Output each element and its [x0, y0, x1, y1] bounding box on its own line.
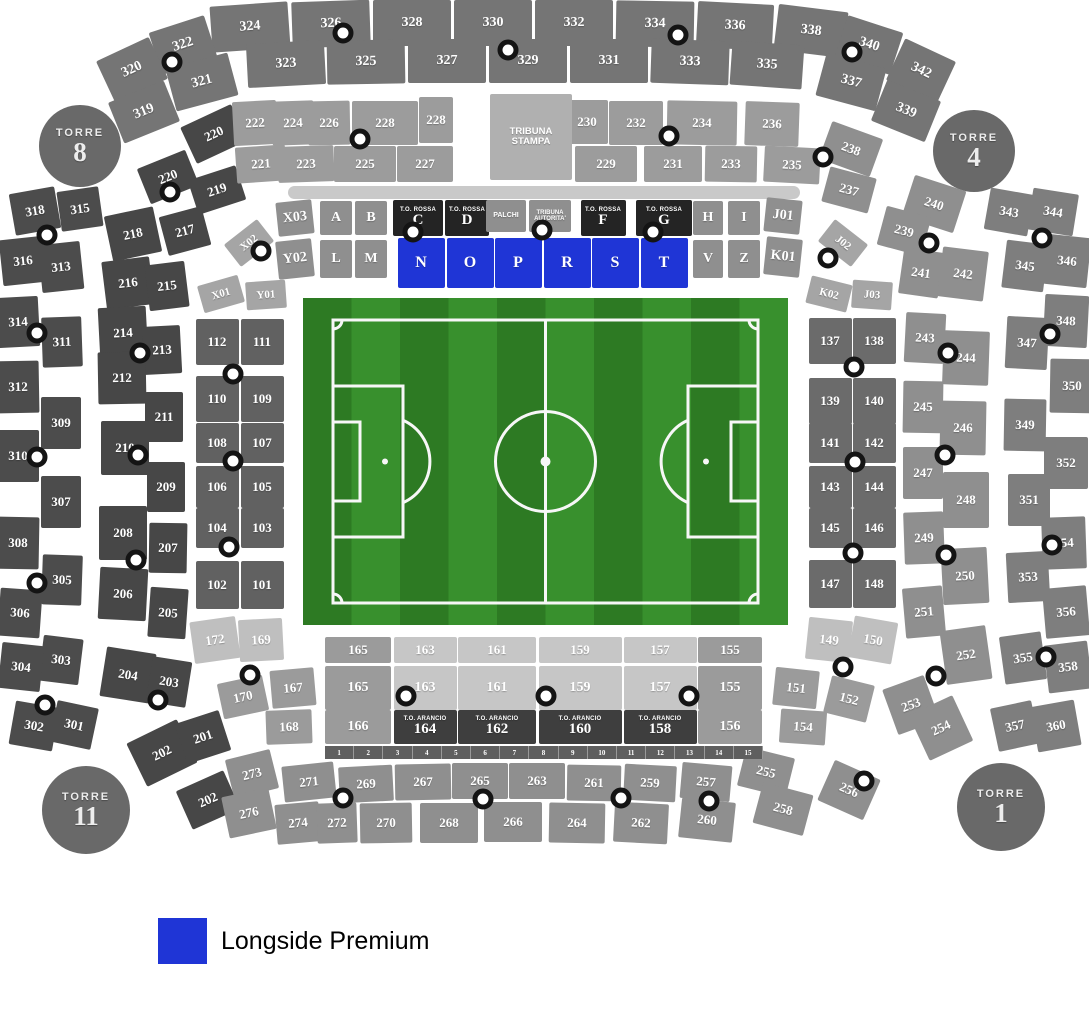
section-to-arancio-158: T.O. ARANCIO158	[624, 710, 697, 744]
gate-marker-icon	[818, 248, 839, 269]
section-163: 163	[394, 637, 457, 663]
section-304: 304	[0, 642, 44, 692]
section-106: 106	[196, 466, 239, 508]
section-to-rossa-f: T.O. ROSSAF	[581, 200, 626, 236]
section-b: B	[355, 201, 387, 235]
section-n[interactable]: N	[398, 238, 445, 288]
penalty-spot-left	[382, 459, 388, 465]
gate-marker-icon	[350, 129, 371, 150]
section-308: 308	[0, 517, 39, 570]
section-139: 139	[809, 378, 852, 424]
seat-row-number: 8	[529, 746, 558, 759]
section-207: 207	[149, 523, 188, 574]
gate-marker-icon	[498, 40, 519, 61]
gate-marker-icon	[27, 323, 48, 344]
section-o[interactable]: O	[447, 238, 494, 288]
section-150: 150	[848, 615, 899, 664]
section-to-arancio-162: T.O. ARANCIO162	[458, 710, 536, 744]
section-333: 333	[650, 39, 729, 86]
section-225: 225	[334, 146, 396, 182]
section-232: 232	[609, 101, 663, 145]
section-231: 231	[644, 146, 702, 182]
section-102: 102	[196, 561, 239, 609]
gate-marker-icon	[37, 225, 58, 246]
section-l: L	[320, 240, 352, 278]
gate-marker-icon	[611, 788, 632, 809]
section-161: 161	[458, 637, 536, 663]
section-a: A	[320, 201, 352, 235]
penalty-spot-right	[703, 459, 709, 465]
seat-row-number: 6	[471, 746, 500, 759]
section-i: I	[728, 201, 760, 235]
section-313: 313	[38, 241, 85, 293]
section-227: 227	[397, 146, 453, 182]
section-248: 248	[943, 472, 989, 528]
pitch	[303, 298, 788, 625]
gate-marker-icon	[668, 25, 689, 46]
stadium-seat-map: 123456789101112131415 Longside Premium 3…	[0, 0, 1089, 1032]
seat-row-number: 5	[442, 746, 471, 759]
section-236: 236	[744, 101, 800, 147]
section-z: Z	[728, 240, 760, 278]
seat-row-number: 9	[559, 746, 588, 759]
seat-row-number: 4	[413, 746, 442, 759]
gate-marker-icon	[27, 447, 48, 468]
section-270: 270	[360, 803, 413, 844]
section-105: 105	[241, 466, 284, 508]
section-266: 266	[484, 802, 542, 842]
section-m: M	[355, 240, 387, 278]
gate-marker-icon	[126, 550, 147, 571]
section-168: 168	[265, 709, 312, 745]
section-209: 209	[147, 462, 185, 512]
walkway-band	[288, 186, 800, 199]
section-352: 352	[1044, 437, 1088, 489]
section-229: 229	[575, 146, 637, 182]
gate-marker-icon	[935, 445, 956, 466]
section-335: 335	[730, 41, 805, 90]
gate-marker-icon	[854, 771, 875, 792]
tower-1: TORRE1	[957, 763, 1045, 851]
legend-label: Longside Premium	[221, 927, 429, 956]
gate-marker-icon	[223, 451, 244, 472]
section-to-arancio-164: T.O. ARANCIO164	[394, 710, 457, 744]
palchi-box: PALCHI	[486, 200, 526, 232]
section-263: 263	[509, 763, 565, 799]
section-155: 155	[698, 637, 762, 663]
section-111: 111	[241, 319, 284, 365]
gate-marker-icon	[130, 343, 151, 364]
seat-row-number: 15	[734, 746, 763, 759]
gate-marker-icon	[842, 42, 863, 63]
gate-marker-icon	[160, 182, 181, 203]
gate-marker-icon	[643, 222, 664, 243]
section-233: 233	[705, 146, 758, 183]
section-147: 147	[809, 560, 852, 608]
seat-row-number: 11	[617, 746, 646, 759]
section-252: 252	[939, 625, 992, 685]
gate-marker-icon	[679, 686, 700, 707]
gate-marker-icon	[148, 690, 169, 711]
section-307: 307	[41, 476, 81, 528]
center-spot	[541, 457, 551, 467]
section-j03: J03	[851, 280, 893, 311]
gate-marker-icon	[843, 543, 864, 564]
section-325: 325	[327, 39, 406, 84]
gate-marker-icon	[659, 126, 680, 147]
gate-marker-icon	[333, 788, 354, 809]
section-331: 331	[570, 39, 648, 83]
section-167: 167	[269, 667, 316, 709]
gate-marker-icon	[240, 665, 261, 686]
section-172: 172	[189, 616, 240, 664]
section-145: 145	[809, 508, 852, 548]
section-211: 211	[145, 392, 183, 442]
section-312: 312	[0, 361, 39, 414]
section-323: 323	[246, 40, 326, 88]
section-109: 109	[241, 376, 284, 422]
section-305: 305	[41, 554, 83, 605]
section-r[interactable]: R	[544, 238, 591, 288]
section-165: 165	[325, 637, 391, 663]
section-152: 152	[823, 675, 875, 723]
section-309: 309	[41, 397, 81, 449]
section-226: 226	[308, 101, 351, 146]
section-165: 165	[325, 666, 391, 710]
gate-marker-icon	[919, 233, 940, 254]
gate-marker-icon	[926, 666, 947, 687]
section-v: V	[693, 240, 723, 278]
section-143: 143	[809, 466, 852, 508]
gate-marker-icon	[699, 791, 720, 812]
section-j01: J01	[763, 197, 802, 235]
section-242: 242	[937, 246, 989, 301]
section-156: 156	[698, 710, 762, 744]
section-343: 343	[984, 187, 1035, 236]
section-144: 144	[853, 466, 896, 508]
legend: Longside Premium	[158, 918, 429, 964]
tower-8: TORRE8	[39, 105, 121, 187]
seat-row-number: 12	[646, 746, 675, 759]
gate-marker-icon	[223, 364, 244, 385]
gate-marker-icon	[1040, 324, 1061, 345]
section-to-arancio-160: T.O. ARANCIO160	[539, 710, 622, 744]
gate-marker-icon	[219, 537, 240, 558]
section-140: 140	[853, 378, 896, 424]
section-107: 107	[241, 423, 284, 463]
gate-marker-icon	[938, 343, 959, 364]
gate-marker-icon	[35, 695, 56, 716]
section-230: 230	[566, 100, 608, 144]
gate-marker-icon	[128, 445, 149, 466]
section-h: H	[693, 201, 723, 235]
section-154: 154	[779, 708, 827, 745]
section-k01: K01	[763, 236, 803, 278]
section-161: 161	[458, 666, 536, 710]
gate-marker-icon	[1032, 228, 1053, 249]
section-311: 311	[41, 316, 83, 367]
legend-swatch	[158, 918, 207, 964]
section-155: 155	[698, 666, 762, 710]
section-t[interactable]: T	[641, 238, 688, 288]
section-to-rossa-d: T.O. ROSSAD	[445, 200, 489, 236]
section-356: 356	[1042, 585, 1089, 639]
section-327: 327	[408, 39, 486, 83]
seat-row-number: 3	[383, 746, 412, 759]
section-k02: K02	[805, 275, 853, 312]
gate-marker-icon	[403, 222, 424, 243]
section-101: 101	[241, 561, 284, 609]
section-264: 264	[549, 803, 606, 844]
section-245: 245	[903, 381, 944, 434]
section-228: 228	[419, 97, 453, 143]
section-360: 360	[1030, 700, 1081, 753]
section-157: 157	[624, 637, 697, 663]
section-223: 223	[277, 145, 334, 183]
section-103: 103	[241, 508, 284, 548]
section-151: 151	[772, 667, 820, 709]
section-303: 303	[38, 635, 83, 686]
seat-row-number: 2	[354, 746, 383, 759]
section-258: 258	[752, 782, 813, 836]
section-272: 272	[316, 802, 357, 843]
section-274: 274	[274, 801, 321, 845]
section-137: 137	[809, 318, 852, 364]
section-235: 235	[763, 146, 821, 185]
section-112: 112	[196, 319, 239, 365]
gate-marker-icon	[473, 789, 494, 810]
gate-marker-icon	[27, 573, 48, 594]
seat-row-number: 10	[588, 746, 617, 759]
section-205: 205	[147, 587, 188, 640]
section-x01: X01	[197, 275, 245, 313]
section-159: 159	[539, 637, 622, 663]
section-215: 215	[144, 261, 189, 312]
section-206: 206	[98, 567, 149, 621]
section-y02: Y02	[275, 238, 315, 280]
seat-row-number: 14	[705, 746, 734, 759]
section-p[interactable]: P	[495, 238, 542, 288]
gate-marker-icon	[251, 241, 272, 262]
section-166: 166	[325, 710, 391, 744]
gate-marker-icon	[333, 23, 354, 44]
tower-11: TORRE11	[42, 766, 130, 854]
section-169: 169	[238, 618, 284, 662]
tribuna-stampa: TRIBUNASTAMPA	[490, 94, 572, 180]
gate-marker-icon	[162, 52, 183, 73]
seat-row-strip: 123456789101112131415	[325, 746, 763, 759]
section-217: 217	[159, 206, 212, 256]
seat-row-number: 13	[675, 746, 704, 759]
tower-4: TORRE4	[933, 110, 1015, 192]
section-306: 306	[0, 588, 43, 639]
seat-row-number: 7	[500, 746, 529, 759]
section-350: 350	[1050, 359, 1089, 414]
gate-marker-icon	[833, 657, 854, 678]
section-276: 276	[221, 787, 277, 838]
gate-marker-icon	[844, 357, 865, 378]
section-s[interactable]: S	[592, 238, 639, 288]
section-218: 218	[104, 206, 162, 261]
section-349: 349	[1004, 399, 1047, 452]
section-146: 146	[853, 508, 896, 548]
gate-marker-icon	[845, 452, 866, 473]
section-148: 148	[853, 560, 896, 608]
gate-marker-icon	[396, 686, 417, 707]
gate-marker-icon	[1042, 535, 1063, 556]
section-x03: X03	[275, 199, 314, 237]
section-y01: Y01	[245, 280, 287, 311]
gate-marker-icon	[936, 545, 957, 566]
gate-marker-icon	[532, 220, 553, 241]
gate-marker-icon	[1036, 647, 1057, 668]
section-267: 267	[395, 764, 452, 801]
section-268: 268	[420, 803, 478, 843]
section-271: 271	[281, 761, 336, 802]
seat-row-number: 1	[325, 746, 354, 759]
section-256: 256	[817, 760, 881, 821]
gate-marker-icon	[813, 147, 834, 168]
section-315: 315	[56, 186, 103, 231]
gate-marker-icon	[536, 686, 557, 707]
